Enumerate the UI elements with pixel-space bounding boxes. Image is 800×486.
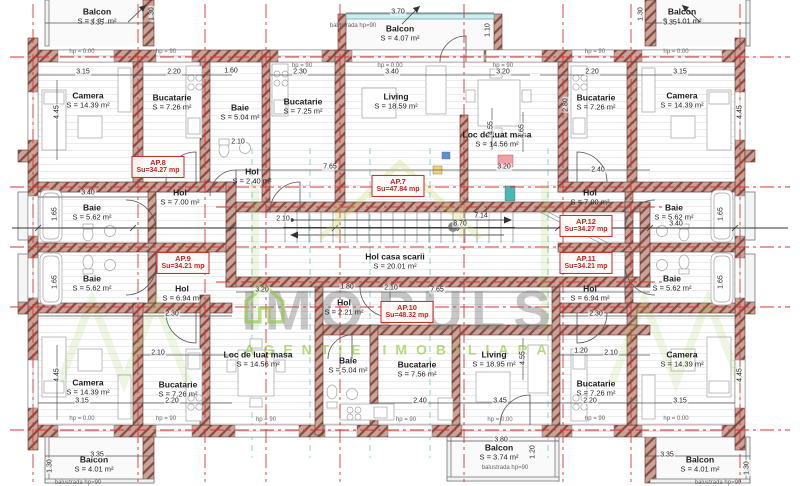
apartment-tag: AP.8 Su=34.27 mp — [132, 156, 185, 178]
apartment-id: AP.7 — [377, 177, 420, 186]
apartment-id: AP.12 — [565, 217, 608, 226]
apartment-usable-area: Su=34.27 mp — [565, 226, 608, 235]
floor-plan-drawing — [0, 0, 800, 486]
apartment-tag: AP.9 Su=34.21 mp — [157, 252, 210, 274]
apartment-tag: AP.12 Su=34.27 mp — [560, 215, 613, 237]
apartment-tag: AP.7 Su=47.84 mp — [372, 175, 425, 197]
floor-plan: IMO PULS AGENTIE IMOBILIARA Balcon S = 4… — [0, 0, 800, 486]
apartment-tag: AP.10 Su=48.32 mp — [381, 301, 434, 323]
apartment-id: AP.9 — [162, 254, 205, 263]
apartment-id: AP.8 — [137, 158, 180, 167]
apartment-usable-area: Su=34.21 mp — [565, 263, 608, 272]
apartment-usable-area: Su=48.32 mp — [386, 312, 429, 321]
apartment-tag: AP.11 Su=34.21 mp — [560, 252, 613, 274]
apartment-id: AP.10 — [386, 303, 429, 312]
apartment-usable-area: Su=34.27 mp — [137, 167, 180, 176]
apartment-usable-area: Su=34.21 mp — [162, 263, 205, 272]
apartment-usable-area: Su=47.84 mp — [377, 186, 420, 195]
apartment-id: AP.11 — [565, 254, 608, 263]
